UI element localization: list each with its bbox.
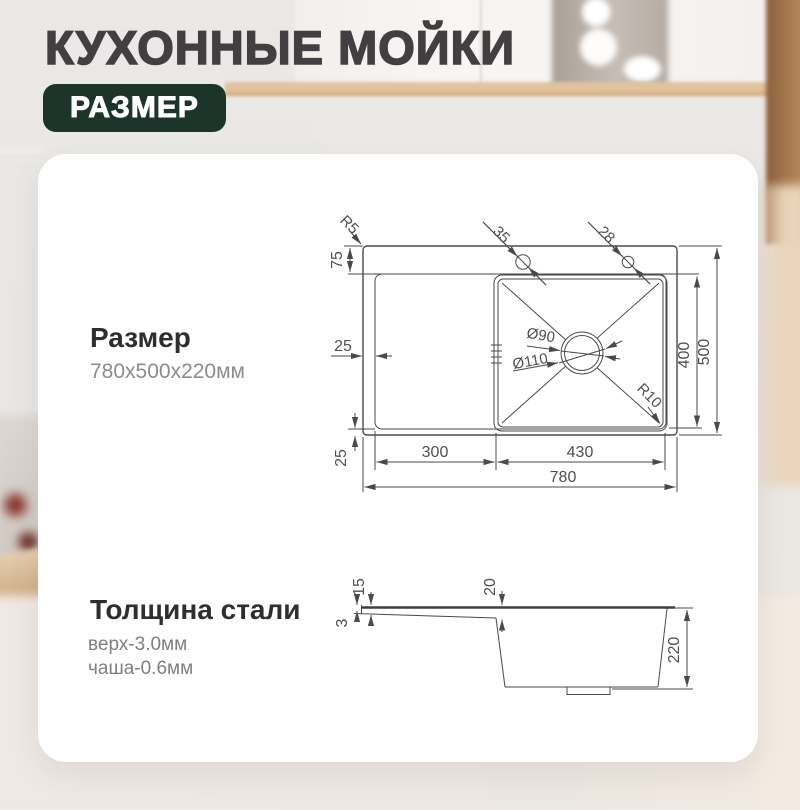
dim-bowl-offset: 20 [482, 578, 499, 596]
section-drain-flange [567, 687, 610, 695]
plan-view: 35 28 R5 75 Ø90 Ø110 R10 [329, 212, 722, 492]
dim-bowl-depth: 400 [676, 342, 693, 369]
dim-drainboard-width: 300 [422, 444, 449, 461]
dim-hole1-diameter: 35 [489, 223, 513, 247]
dim-total-depth: 500 [696, 339, 713, 366]
technical-drawing: 35 28 R5 75 Ø90 Ø110 R10 [0, 0, 800, 800]
dim-hole2-diameter: 28 [594, 223, 618, 247]
plan-drainboard [375, 274, 666, 429]
section-bowl-left-wall [496, 618, 505, 687]
dim-rim-height: 15 [351, 578, 368, 596]
section-view: 3 15 20 220 [334, 578, 693, 695]
dim-bowl-corner-radius: R10 [633, 380, 664, 411]
dim-deck-corner-radius: R5 [336, 212, 362, 238]
dim-deck-height: 75 [329, 251, 346, 269]
dim-bowl-width: 430 [567, 444, 594, 461]
dim-deck-thickness: 3 [334, 618, 351, 627]
dim-total-width: 780 [550, 469, 577, 486]
dim-bottom-margin: 25 [333, 449, 350, 467]
dim-drain-inner: Ø90 [525, 325, 556, 347]
section-drainboard [354, 614, 496, 619]
dim-drain-outer: Ø110 [511, 350, 549, 373]
dim-total-height: 220 [666, 637, 683, 664]
dim-left-margin: 25 [334, 338, 352, 355]
